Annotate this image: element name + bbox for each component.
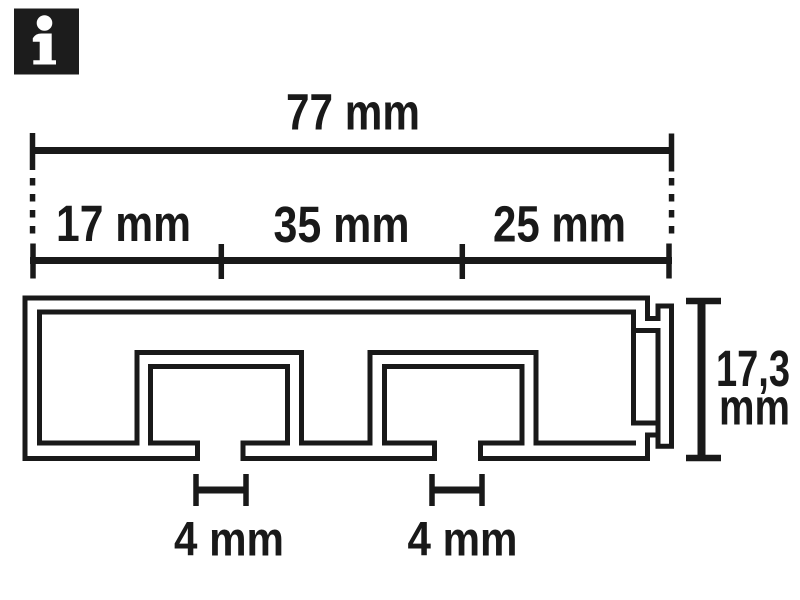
svg-text:77 mm: 77 mm xyxy=(286,84,420,141)
svg-text:4 mm: 4 mm xyxy=(174,514,284,567)
svg-text:35 mm: 35 mm xyxy=(274,196,410,253)
svg-text:25 mm: 25 mm xyxy=(493,196,626,253)
svg-text:mm: mm xyxy=(719,379,790,436)
svg-text:17 mm: 17 mm xyxy=(56,195,191,252)
svg-text:4 mm: 4 mm xyxy=(408,514,518,567)
